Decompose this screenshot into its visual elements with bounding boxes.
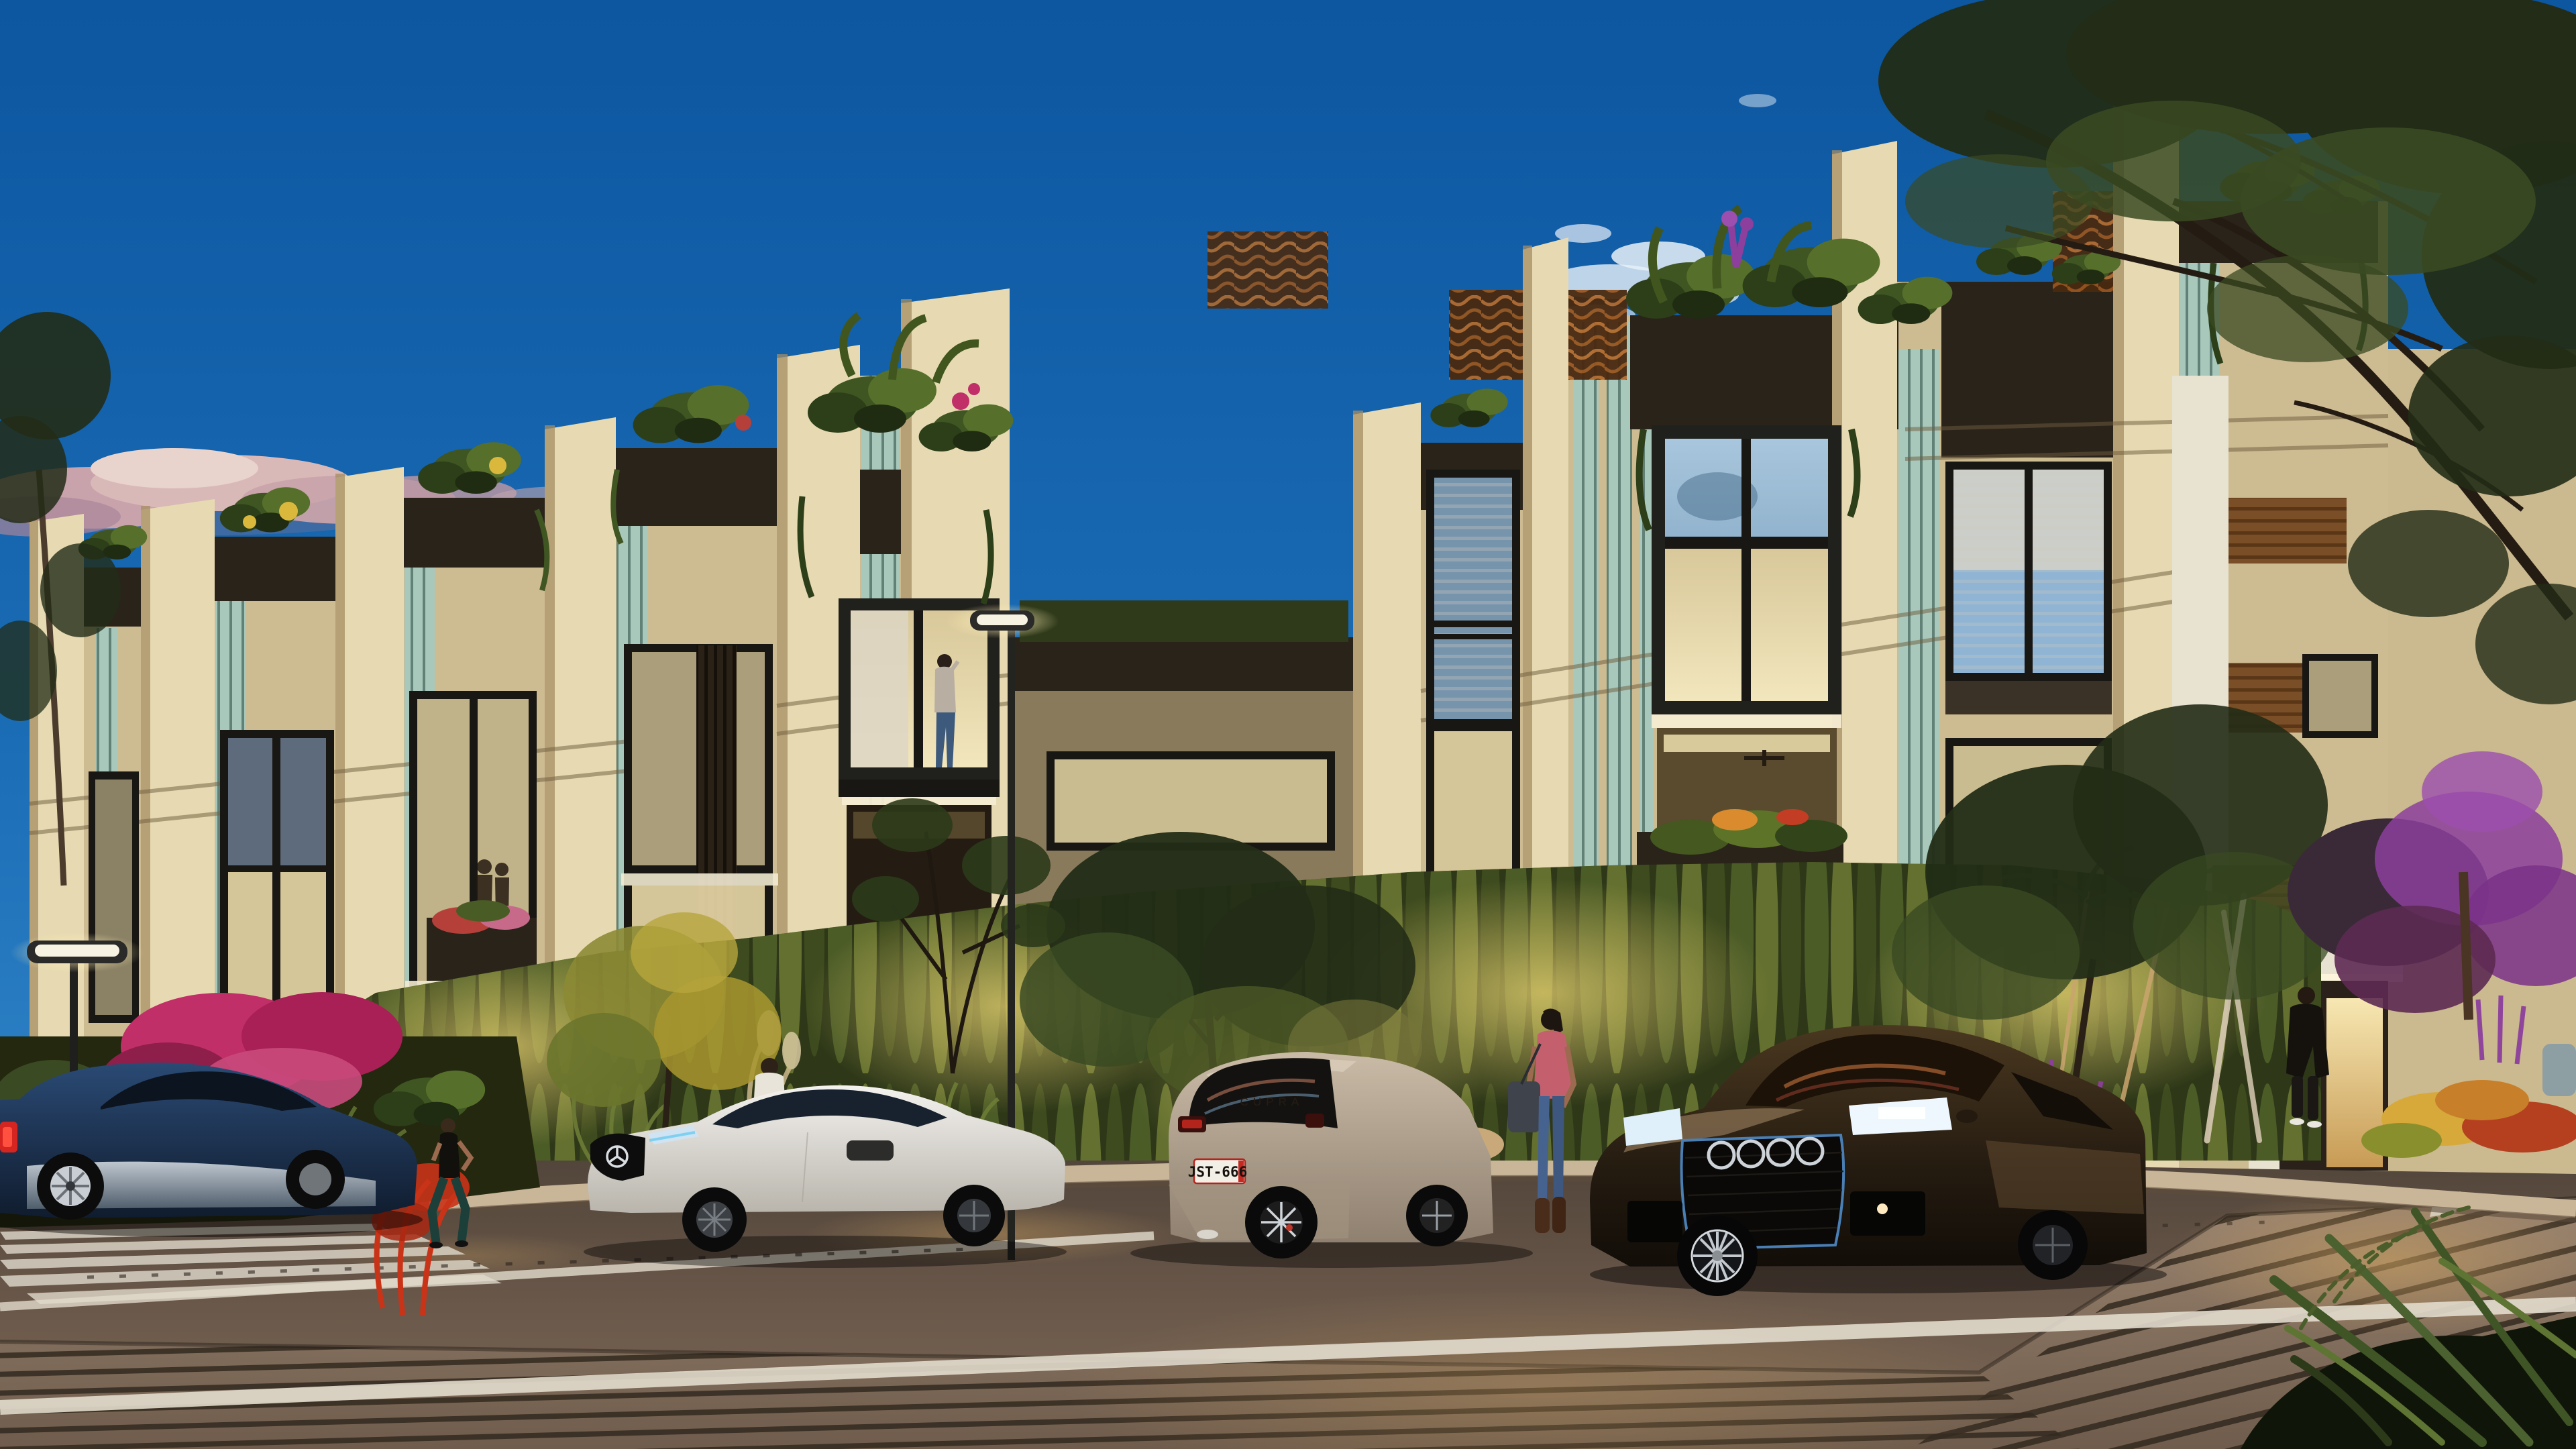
- rear-wheel: [943, 1185, 1005, 1246]
- wood-panel: [2229, 498, 2347, 563]
- black-tank: [439, 1132, 460, 1178]
- rear-wheel: [1245, 1186, 1318, 1258]
- front-wheel: [682, 1187, 747, 1252]
- curtain: [851, 610, 908, 767]
- bag: [1508, 1081, 1540, 1132]
- window-3: [405, 691, 546, 1003]
- architectural-rendering: CUPRA JST-666: [0, 0, 2576, 1449]
- head: [2298, 987, 2315, 1004]
- front-wheel: [1406, 1185, 1468, 1246]
- rear-wheel: [37, 1152, 104, 1220]
- head: [441, 1118, 455, 1133]
- front-wheel: [1677, 1216, 1758, 1296]
- cupra-badge: CUPRA: [1240, 1095, 1304, 1108]
- window-1: [89, 771, 139, 1023]
- distant-car-glimpse: [2542, 1044, 2576, 1096]
- window-2: [220, 730, 334, 1010]
- rear-wheel: [2018, 1210, 2088, 1280]
- license-plate: JST-666: [1188, 1159, 1248, 1183]
- license-plate-text: JST-666: [1188, 1164, 1248, 1180]
